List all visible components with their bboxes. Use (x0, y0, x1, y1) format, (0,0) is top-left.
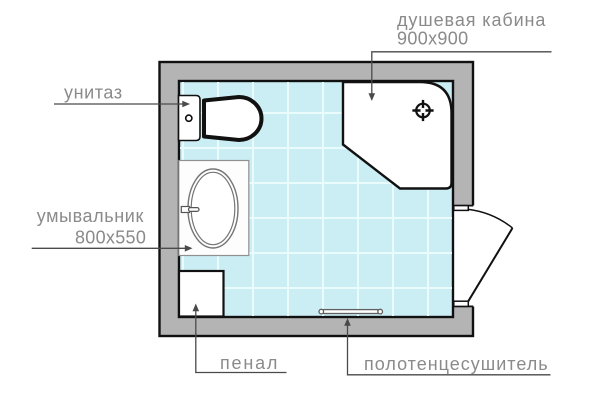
svg-text:800х550: 800х550 (75, 228, 146, 248)
svg-text:умывальник: умывальник (37, 206, 144, 226)
svg-text:унитаз: унитаз (64, 83, 123, 103)
svg-text:душевая кабина: душевая кабина (397, 10, 546, 30)
svg-text:полотенцесушитель: полотенцесушитель (364, 354, 549, 374)
svg-text:пенал: пенал (220, 353, 279, 373)
svg-text:900х900: 900х900 (397, 29, 469, 49)
